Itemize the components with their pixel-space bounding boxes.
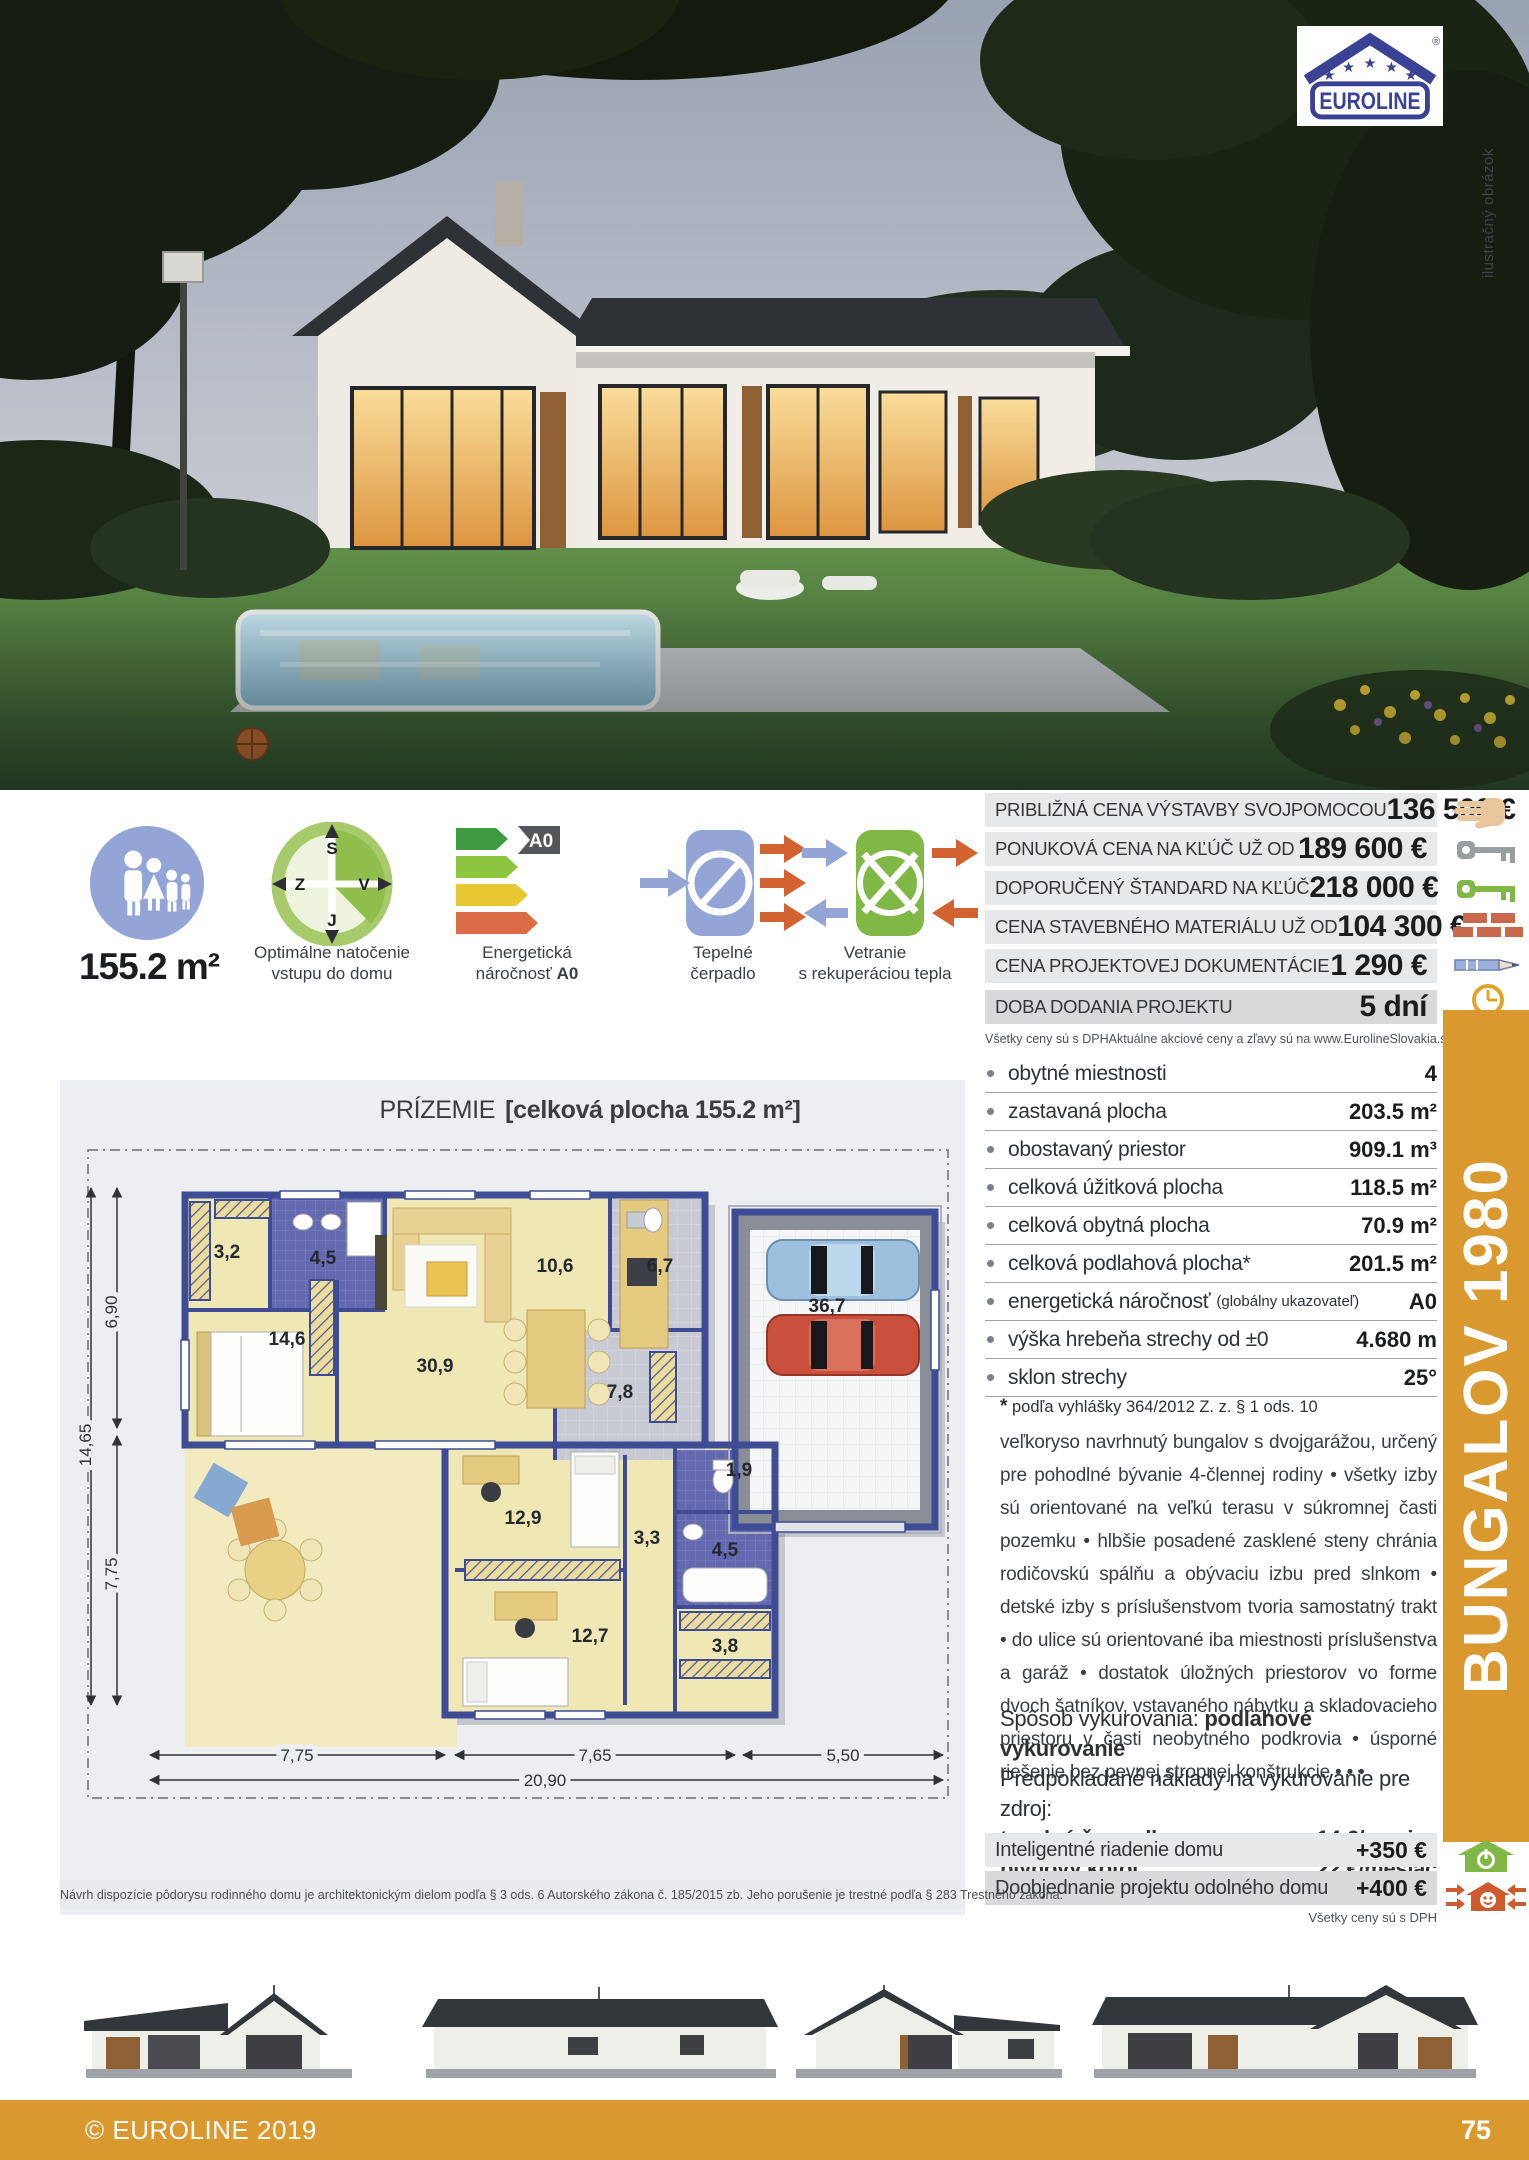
room-label: 7,8: [607, 1382, 633, 1403]
price-row: DOPORUČENÝ ŠTANDARD NA KĽÚČ 218 000 €: [985, 871, 1437, 905]
registered-mark: ®: [1432, 36, 1440, 48]
svg-text:★: ★: [1404, 67, 1417, 84]
dining-table: [527, 1310, 585, 1408]
room-label: 14,6: [269, 1329, 306, 1350]
bullet-icon: [987, 1108, 994, 1115]
footer-bar: © EUROLINE 2019 75: [0, 2100, 1529, 2160]
price-row-delivery: DOBA DODANIA PROJEKTU 5 dní: [985, 990, 1437, 1024]
room-label: 3,3: [634, 1528, 660, 1549]
price-notes: Všetky ceny sú s DPH Aktuálne akciové ce…: [985, 1032, 1437, 1046]
spec-row: obytné miestnosti4: [985, 1055, 1437, 1093]
addon-row: Inteligentné riadenie domu +350 €: [985, 1833, 1437, 1867]
price-row: PONUKOVÁ CENA NA KĽÚČ UŽ OD 189 600 €: [985, 832, 1437, 866]
car-red: [767, 1315, 919, 1375]
spec-row: celková podlahová plocha*201.5 m²: [985, 1245, 1437, 1283]
price-label: PRIBLIŽNÁ CENA VÝSTAVBY SVOJPOMOCOU: [995, 799, 1386, 821]
catalog-page: ★★★ ★★ ® EUROLINE ilustračný obrázok 155: [0, 0, 1529, 2160]
model-name: BUNGALOV 1980: [1451, 1158, 1522, 1694]
heating-method-label: Spôsob vykurovania:: [1000, 1706, 1199, 1731]
heating-costs-intro: Predpokladané náklady na vykurovanie pre…: [1000, 1764, 1437, 1824]
bricks-icon: [1451, 908, 1525, 944]
energy-caption: Energetická náročnosť A0: [432, 942, 622, 984]
elevation-back: [788, 1985, 1073, 2085]
bullet-icon: [987, 1222, 994, 1229]
bullet-icon: [987, 1374, 994, 1381]
price-row: PRIBLIŽNÁ CENA VÝSTAVBY SVOJPOMOCOU 136 …: [985, 793, 1437, 827]
euroline-logo: ★★★ ★★ ® EUROLINE: [1297, 26, 1443, 126]
dim-label: 7,75: [280, 1746, 313, 1765]
room-label: 4,5: [310, 1248, 337, 1269]
price-row: CENA STAVEBNÉHO MATERIÁLU UŽ OD 104 300 …: [985, 910, 1437, 944]
price-value: 189 600 €: [1298, 832, 1427, 866]
price-value: 218 000 €: [1309, 871, 1438, 905]
price-value: 5 dní: [1359, 990, 1427, 1024]
euroline-logo-icon: ★★★ ★★ ® EUROLINE: [1297, 26, 1443, 126]
orientation-caption: Optimálne natočenievstupu do domu: [212, 942, 452, 984]
bullet-icon: [987, 1146, 994, 1153]
elevation-front: [78, 1985, 363, 2085]
price-label: CENA STAVEBNÉHO MATERIÁLU UŽ OD: [995, 916, 1337, 938]
terrace-table: [245, 1540, 305, 1600]
dim-label: 20,90: [524, 1771, 567, 1790]
bullet-icon: [987, 1184, 994, 1191]
brand-name: EUROLINE: [1319, 88, 1420, 115]
svg-text:★: ★: [1342, 59, 1355, 76]
dim-label: 14,65: [76, 1424, 95, 1467]
room-label: 36,7: [809, 1296, 846, 1317]
spec-row: výška hrebeňa strechy od ±04.680 m: [985, 1321, 1437, 1359]
bullet-icon: [987, 1298, 994, 1305]
copyright-disclaimer: Návrh dispozície pôdorysu rodinného domu…: [60, 1880, 965, 1910]
basketball-hoop-pole: [180, 270, 187, 570]
room-label: 1,9: [726, 1460, 752, 1481]
price-label: DOBA DODANIA PROJEKTU: [995, 996, 1232, 1018]
room-label: 4,5: [712, 1540, 739, 1561]
addons-vat-note: Všetky ceny sú s DPH: [985, 1910, 1437, 1925]
bullet-icon: [987, 1336, 994, 1343]
orientation-compass-icon: S Z V J: [262, 822, 402, 946]
spec-row: celková obytná plocha70.9 m²: [985, 1207, 1437, 1245]
website-note[interactable]: Aktuálne akciové ceny a zľavy sú na www.…: [1109, 1032, 1453, 1046]
price-label: DOPORUČENÝ ŠTANDARD NA KĽÚČ: [995, 877, 1309, 899]
key-gray-icon: [1451, 832, 1525, 868]
spec-row: obostavaný priestor909.1 m³: [985, 1131, 1437, 1169]
room-label: 10,6: [537, 1256, 574, 1277]
bathtub: [683, 1568, 767, 1602]
footer-copyright: © EUROLINE 2019: [85, 2115, 317, 2146]
room-label: 3,8: [712, 1636, 738, 1657]
dim-label: 7,65: [578, 1746, 611, 1765]
ventilation-caption: Vetranies rekuperáciou tepla: [775, 942, 975, 984]
dim-label: 6,90: [102, 1295, 121, 1328]
price-label: CENA PROJEKTOVEJ DOKUMENTÁCIE: [995, 955, 1329, 977]
illustration-note: ilustračný obrázok: [1480, 118, 1497, 278]
price-row: CENA PROJEKTOVEJ DOKUMENTÁCIE 1 290 €: [985, 949, 1437, 983]
vat-note: Všetky ceny sú s DPH: [985, 1032, 1109, 1046]
energy-badge: A0: [529, 831, 553, 852]
spec-row: zastavaná plocha203.5 m²: [985, 1093, 1437, 1131]
smart-home-icon: [1450, 1838, 1522, 1874]
energy-class-icon: A0: [452, 826, 602, 938]
svg-text:★: ★: [1385, 59, 1398, 76]
bullet-icon: [987, 1260, 994, 1267]
hand-icon: [1451, 794, 1525, 830]
elevation-side-right: [1088, 1985, 1483, 2085]
svg-text:★: ★: [1363, 55, 1376, 72]
price-label: PONUKOVÁ CENA NA KĽÚČ UŽ OD: [995, 838, 1294, 860]
bullet-icon: [987, 1070, 994, 1077]
price-value: 104 300 €: [1337, 910, 1466, 944]
specs-footnote: * podľa vyhlášky 364/2012 Z. z. § 1 ods.…: [1000, 1396, 1437, 1418]
compass-north: S: [326, 839, 337, 858]
heat-pump-icon: [638, 826, 808, 940]
family-area-icon: [88, 824, 206, 942]
spec-row: energetická náročnosť(globálny ukazovate…: [985, 1283, 1437, 1321]
car-blue: [767, 1240, 919, 1300]
compass-east: V: [358, 875, 370, 894]
compass-west: Z: [295, 875, 305, 894]
garage-door: [775, 1522, 905, 1532]
room-label: 12,9: [505, 1508, 542, 1529]
price-value: 1 290 €: [1330, 949, 1427, 983]
room-label: 3,2: [214, 1242, 240, 1263]
room-label: 12,7: [572, 1626, 609, 1647]
price-table: PRIBLIŽNÁ CENA VÝSTAVBY SVOJPOMOCOU 136 …: [985, 793, 1437, 1029]
pencil-icon: [1451, 946, 1525, 982]
spec-row: sklon strechy25°: [985, 1359, 1437, 1397]
floor-plan: 3,2 4,5 14,6 30,9 10,6 6,7 7,8 36,7 1,9 …: [75, 1140, 960, 1800]
resilient-home-icon: [1444, 1876, 1528, 1916]
elevation-side-left: [418, 1985, 783, 2085]
dim-label: 5,50: [826, 1746, 859, 1765]
specs-table: obytné miestnosti4 zastavaná plocha203.5…: [985, 1055, 1437, 1397]
room-label: 6,7: [647, 1256, 673, 1277]
ventilation-icon: [800, 826, 980, 940]
dim-label: 7,75: [102, 1557, 121, 1590]
model-name-bar: BUNGALOV 1980: [1443, 1010, 1529, 1842]
compass-south: J: [327, 911, 336, 930]
page-number: 75: [1461, 2115, 1491, 2146]
plan-title: PRÍZEMIE[celková plocha 155.2 m²]: [310, 1096, 870, 1125]
key-green-icon: [1451, 871, 1525, 907]
svg-text:★: ★: [1323, 67, 1336, 84]
spec-row: celková úžitková plocha118.5 m²: [985, 1169, 1437, 1207]
room-label: 30,9: [417, 1356, 454, 1377]
